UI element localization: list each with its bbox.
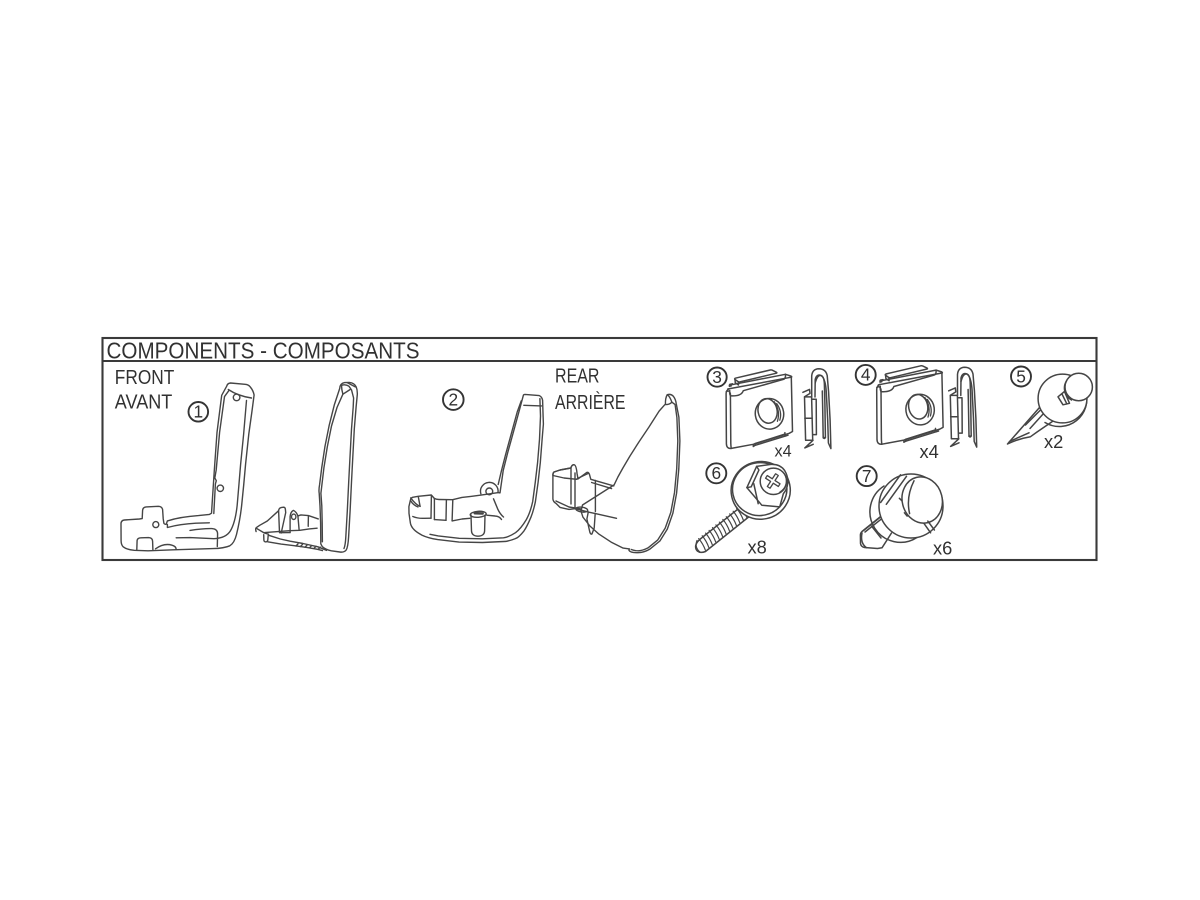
svg-text:REAR: REAR bbox=[555, 364, 600, 387]
svg-text:x2: x2 bbox=[1044, 431, 1063, 452]
svg-text:AVANT: AVANT bbox=[115, 391, 173, 414]
svg-text:6: 6 bbox=[711, 463, 721, 483]
svg-text:2: 2 bbox=[448, 389, 458, 409]
svg-text:1: 1 bbox=[193, 402, 203, 422]
svg-text:x4: x4 bbox=[920, 441, 939, 462]
svg-text:x6: x6 bbox=[933, 537, 952, 558]
svg-text:ARRIÈRE: ARRIÈRE bbox=[555, 391, 626, 414]
svg-text:7: 7 bbox=[862, 466, 872, 486]
svg-text:5: 5 bbox=[1016, 366, 1026, 386]
svg-text:x4: x4 bbox=[775, 443, 792, 461]
svg-text:FRONT: FRONT bbox=[115, 366, 175, 389]
svg-text:x8: x8 bbox=[748, 536, 767, 557]
svg-text:4: 4 bbox=[861, 365, 871, 385]
svg-text:COMPONENTS - COMPOSANTS: COMPONENTS - COMPOSANTS bbox=[107, 338, 420, 364]
svg-text:3: 3 bbox=[712, 367, 722, 387]
